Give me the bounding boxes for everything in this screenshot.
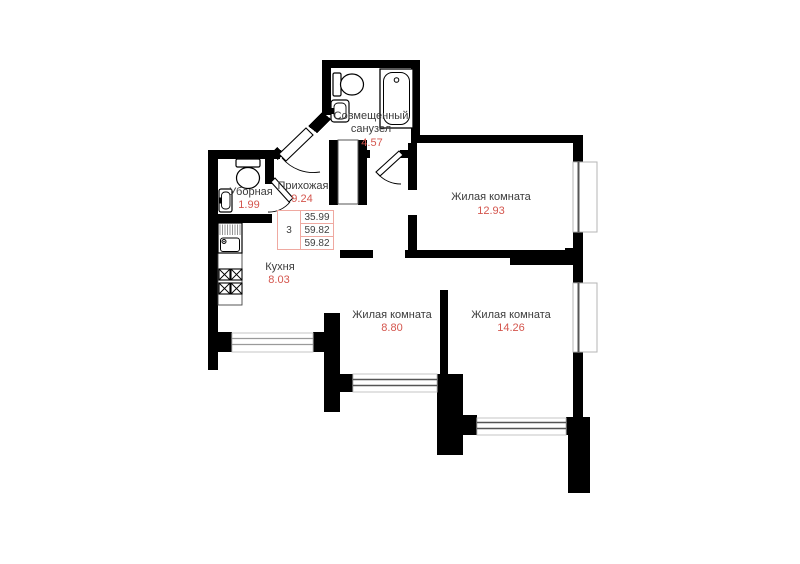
wall-segment [329,140,338,205]
toilet-tank [236,159,260,167]
tub-drain [394,78,399,83]
duct-shaft [338,140,358,204]
areas-column: 35.99 59.82 59.82 [301,211,333,249]
sink-faucet-dot [223,241,225,243]
room-label-hallway: Прихожая [278,180,329,193]
wall-segment [322,60,331,115]
room-label-living-1: Жилая комната [451,191,530,204]
total-area-value: 59.82 [301,237,333,249]
living-area-value: 35.99 [301,211,333,223]
wall-segment [218,332,232,352]
wall-segment [573,135,583,162]
room-area-living-2: 8.80 [381,322,402,334]
rooms-count-cell: 3 [278,211,301,249]
room-area-kitchen: 8.03 [268,274,289,286]
wall-segment [208,150,218,370]
room-label-kitchen: Кухня [265,261,294,274]
wall-segment [322,60,420,68]
toilet-tank [333,73,341,96]
area-summary-table: 3 35.99 59.82 59.82 [277,210,334,250]
wall-segment [437,374,463,455]
window-frame [573,283,597,352]
wall-segment [411,135,582,143]
toilet-bowl [341,74,364,95]
total-area-value: 59.82 [301,223,333,237]
window-living-8 [353,374,437,392]
window-frame [477,418,566,435]
room-label-living-2: Жилая комната [352,309,431,322]
wall-segment [463,415,477,435]
window-living-12b [573,283,597,352]
faucet [219,198,223,204]
wall-segment [573,352,583,417]
window-frame [573,162,597,232]
window-living-12 [573,162,597,232]
floor-plan-drawing [0,0,800,564]
room-area-toilet-room: 1.99 [238,199,259,211]
bathroom-door [376,151,403,184]
room-area-living-1: 12.93 [477,205,505,217]
wall-segment [405,250,510,258]
wall-segment [308,112,331,133]
door-swing-arc [378,174,401,184]
room-label-bathroom: Совмещенный санузел [334,110,409,136]
wall-segment [324,313,340,412]
wall-segment [565,248,583,265]
wall-segment [408,143,417,190]
window-frame [353,374,437,392]
wall-segment [568,417,590,493]
wall-segment [358,140,367,205]
entrance-door [279,128,320,173]
room-label-living-3: Жилая комната [471,309,550,322]
door-leaf [279,128,313,161]
room-name: санузел [334,123,409,136]
wall-segment [208,214,272,223]
room-name: Совмещенный [334,110,409,123]
stove-icon [219,269,242,294]
wall-segment [208,150,280,159]
window-frame [232,333,313,352]
apartment-floor-plan: Совмещенный санузел 4.57 Уборная 1.99 Пр… [0,0,800,564]
window-living-14 [477,418,566,435]
toilet-icon [236,159,260,189]
room-area-bathroom: 4.57 [361,137,382,149]
room-label-toilet-room: Уборная [229,186,272,199]
wall-segment [340,250,373,258]
door-leaf [376,151,403,176]
door-swing-arc [282,158,320,173]
window-kitchen [232,333,313,352]
wall-segment [408,215,417,258]
kitchen-sink-icon [218,223,242,253]
room-area-living-3: 14.26 [497,322,525,334]
toilet-icon [333,73,364,96]
room-area-hallway: 9.24 [291,193,312,205]
wall-segment [440,290,448,374]
wall-segment [338,374,353,392]
